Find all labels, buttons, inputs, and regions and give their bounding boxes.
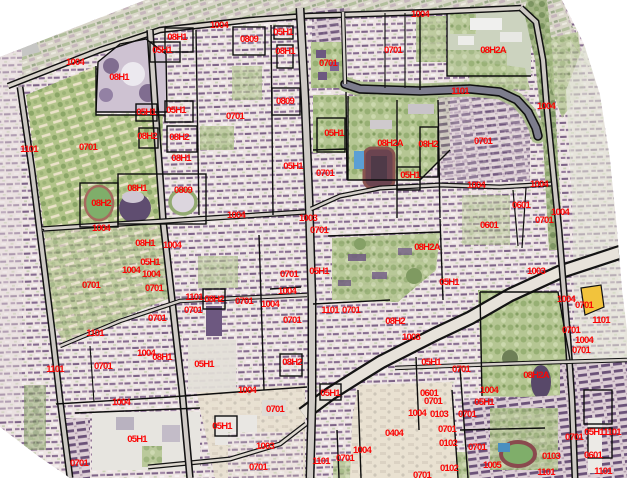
svg-text:1101: 1101 (321, 305, 340, 316)
svg-text:0701: 0701 (235, 296, 254, 307)
svg-text:1004: 1004 (537, 101, 556, 112)
svg-text:1004: 1004 (66, 57, 85, 68)
svg-text:0701: 0701 (384, 45, 403, 56)
svg-text:0701: 0701 (565, 432, 584, 443)
svg-text:0701: 0701 (280, 269, 299, 280)
svg-text:0701: 0701 (438, 424, 457, 435)
svg-text:05H1: 05H1 (283, 161, 304, 172)
svg-text:0701: 0701 (342, 305, 361, 316)
svg-text:1101: 1101 (594, 466, 613, 477)
svg-text:08H2: 08H2 (418, 139, 438, 150)
svg-text:0601: 0601 (512, 200, 531, 211)
svg-text:08H1: 08H1 (109, 72, 130, 83)
svg-text:0701: 0701 (424, 396, 443, 407)
svg-text:1004: 1004 (112, 397, 131, 408)
svg-text:0701: 0701 (310, 225, 329, 236)
svg-text:1004: 1004 (238, 385, 257, 396)
svg-text:08H2A: 08H2A (480, 45, 507, 56)
svg-text:0701: 0701 (474, 136, 493, 147)
svg-text:1101: 1101 (312, 456, 331, 467)
svg-text:1004: 1004 (227, 210, 246, 221)
svg-text:05H1: 05H1 (400, 170, 421, 181)
svg-text:0701: 0701 (336, 453, 355, 464)
svg-text:08H2: 08H2 (385, 316, 405, 327)
svg-text:05H1: 05H1 (136, 107, 157, 118)
svg-text:08H2: 08H2 (91, 198, 111, 209)
svg-text:1004: 1004 (163, 240, 182, 251)
svg-text:08H2: 08H2 (204, 294, 224, 305)
svg-text:0701: 0701 (266, 404, 285, 415)
svg-text:08H1: 08H1 (167, 32, 188, 43)
svg-text:1004: 1004 (411, 9, 430, 20)
svg-text:05H1: 05H1 (474, 397, 495, 408)
svg-text:0701: 0701 (79, 142, 98, 153)
svg-text:05H1: 05H1 (324, 128, 345, 139)
svg-text:0701: 0701 (452, 364, 471, 375)
svg-text:0701: 0701 (148, 313, 167, 324)
svg-text:05H1: 05H1 (309, 266, 330, 277)
svg-text:05H1: 05H1 (166, 105, 187, 116)
svg-text:1101: 1101 (603, 427, 622, 438)
svg-text:08H2: 08H2 (169, 132, 189, 143)
svg-text:1004: 1004 (278, 286, 297, 297)
svg-text:0701: 0701 (316, 168, 335, 179)
svg-text:0701: 0701 (575, 300, 594, 311)
svg-text:05H1: 05H1 (584, 427, 605, 438)
svg-text:1003: 1003 (299, 213, 317, 224)
svg-text:0701: 0701 (249, 462, 268, 473)
svg-text:1004: 1004 (353, 445, 372, 456)
svg-text:0404: 0404 (385, 428, 404, 439)
svg-text:05H1: 05H1 (127, 434, 148, 445)
svg-text:0701: 0701 (226, 111, 245, 122)
svg-text:0701: 0701 (184, 305, 203, 316)
svg-text:08H2A: 08H2A (523, 370, 550, 381)
svg-text:0601: 0601 (480, 220, 499, 231)
svg-text:1004: 1004 (530, 179, 549, 190)
svg-text:0701: 0701 (468, 442, 487, 453)
svg-text:0701: 0701 (572, 345, 591, 356)
svg-text:0102: 0102 (439, 438, 457, 449)
svg-text:05H1: 05H1 (194, 359, 215, 370)
svg-text:1004: 1004 (122, 265, 141, 276)
svg-text:1004: 1004 (142, 269, 161, 280)
svg-text:08H2: 08H2 (137, 131, 157, 142)
svg-text:1101: 1101 (537, 467, 556, 478)
svg-text:0701: 0701 (413, 470, 432, 478)
svg-text:08H1: 08H1 (135, 238, 156, 249)
svg-text:0809: 0809 (174, 185, 192, 196)
svg-text:0701: 0701 (94, 361, 113, 372)
svg-text:0102: 0102 (440, 463, 458, 474)
svg-text:1003: 1003 (527, 266, 545, 277)
svg-text:1004: 1004 (557, 294, 576, 305)
svg-text:08H1: 08H1 (127, 183, 148, 194)
svg-text:0809: 0809 (240, 34, 258, 45)
svg-text:1101: 1101 (20, 144, 39, 155)
svg-text:08H2A: 08H2A (377, 138, 404, 149)
svg-text:0701: 0701 (70, 458, 89, 469)
svg-text:0103: 0103 (542, 451, 560, 462)
svg-text:0701: 0701 (283, 315, 302, 326)
svg-text:05H1: 05H1 (320, 388, 341, 399)
svg-text:0701: 0701 (145, 283, 164, 294)
svg-text:05H1: 05H1 (140, 257, 161, 268)
svg-text:1101: 1101 (46, 364, 65, 375)
svg-text:08H1: 08H1 (152, 352, 173, 363)
svg-text:1004: 1004 (480, 385, 499, 396)
svg-text:0809: 0809 (276, 96, 294, 107)
svg-text:1004: 1004 (261, 299, 280, 310)
svg-text:05H1: 05H1 (421, 357, 442, 368)
svg-text:1101: 1101 (185, 292, 204, 303)
svg-text:08H2A: 08H2A (414, 242, 441, 253)
svg-text:05H1: 05H1 (439, 277, 460, 288)
svg-text:0601: 0601 (584, 450, 603, 461)
svg-text:0701: 0701 (458, 409, 477, 420)
svg-text:1004: 1004 (551, 207, 570, 218)
svg-text:05H1: 05H1 (273, 27, 294, 38)
svg-text:05H1: 05H1 (212, 421, 233, 432)
svg-text:1004: 1004 (467, 180, 486, 191)
svg-text:08H1: 08H1 (171, 153, 192, 164)
svg-text:08H2: 08H2 (282, 357, 302, 368)
svg-text:1101: 1101 (451, 86, 470, 97)
svg-text:08H1: 08H1 (275, 46, 296, 57)
svg-text:1003: 1003 (256, 441, 274, 452)
svg-text:1004: 1004 (408, 408, 427, 419)
svg-text:1101: 1101 (592, 315, 611, 326)
svg-text:05H1: 05H1 (152, 45, 173, 56)
svg-text:1004: 1004 (92, 223, 111, 234)
svg-text:0701: 0701 (82, 280, 101, 291)
svg-text:0701: 0701 (319, 58, 338, 69)
svg-text:1003: 1003 (402, 332, 420, 343)
svg-text:1101: 1101 (86, 328, 105, 339)
svg-text:1005: 1005 (483, 460, 502, 471)
svg-text:0103: 0103 (430, 409, 448, 420)
svg-text:1004: 1004 (210, 20, 229, 31)
